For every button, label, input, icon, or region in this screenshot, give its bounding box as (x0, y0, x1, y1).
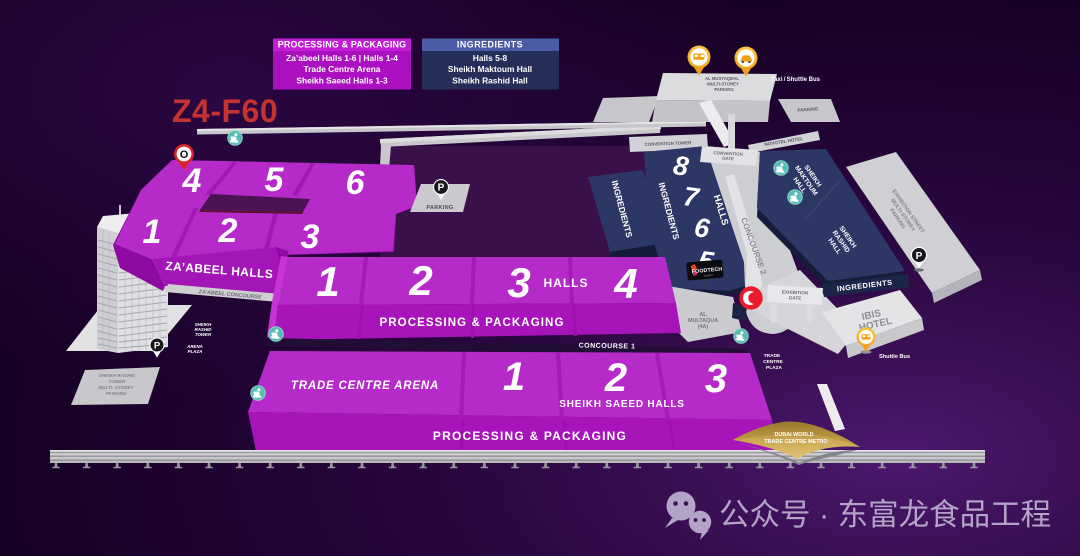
svg-text:DUBAI WORLD: DUBAI WORLD (775, 432, 814, 438)
svg-text:P: P (154, 340, 161, 351)
svg-text:PARKING: PARKING (714, 87, 734, 92)
svg-text:TRADE: TRADE (764, 353, 781, 359)
svg-text:INGREDIENTS: INGREDIENTS (457, 40, 523, 50)
svg-text:P: P (916, 251, 923, 262)
svg-text:TRADE CENTRE ARENA: TRADE CENTRE ARENA (291, 380, 439, 392)
svg-text:3: 3 (301, 218, 320, 256)
svg-text:公众号 · 东富龙食品工程: 公众号 · 东富龙食品工程 (719, 498, 1051, 532)
svg-text:(4A): (4A) (698, 324, 709, 330)
svg-text:2: 2 (408, 257, 432, 304)
svg-text:5: 5 (265, 161, 285, 199)
svg-text:Sheikh Rashid Hall: Sheikh Rashid Hall (452, 76, 527, 86)
svg-text:2: 2 (218, 212, 238, 250)
svg-text:3: 3 (705, 357, 727, 401)
svg-text:Trade Centre Arena: Trade Centre Arena (304, 64, 381, 74)
svg-text:PLAZA: PLAZA (766, 365, 783, 371)
svg-text:1: 1 (503, 355, 525, 399)
svg-text:PROCESSING & PACKAGING: PROCESSING & PACKAGING (379, 317, 564, 329)
svg-text:Sheikh Saeed Halls 1-3: Sheikh Saeed Halls 1-3 (296, 76, 388, 86)
svg-text:GATE: GATE (722, 156, 734, 162)
svg-text:Za’abeel Halls 1-6 | Halls 1-4: Za’abeel Halls 1-6 | Halls 1-4 (286, 53, 398, 63)
svg-text:PARKING: PARKING (106, 391, 127, 396)
svg-text:P: P (438, 183, 445, 194)
svg-text:1: 1 (143, 213, 162, 251)
svg-text:AL MUSTAQBAL: AL MUSTAQBAL (705, 76, 739, 81)
svg-text:MULTI- STOREY: MULTI- STOREY (98, 385, 134, 390)
svg-text:MULTI-STOREY: MULTI-STOREY (707, 82, 739, 87)
svg-text:PARKING: PARKING (426, 205, 453, 211)
svg-text:1: 1 (316, 258, 339, 305)
svg-text:6: 6 (346, 164, 366, 202)
svg-text:TOWER: TOWER (195, 332, 212, 337)
svg-text:3: 3 (507, 259, 530, 306)
svg-text:CENTRE: CENTRE (763, 359, 784, 365)
svg-text:PROCESSING & PACKAGING: PROCESSING & PACKAGING (433, 429, 627, 443)
svg-text:HALLS: HALLS (544, 276, 589, 290)
svg-text:Shuttle Bus: Shuttle Bus (879, 354, 910, 360)
svg-text:TOWER: TOWER (108, 379, 126, 384)
svg-text:GATE: GATE (789, 295, 802, 300)
svg-text:CONCOURSE 1: CONCOURSE 1 (579, 343, 636, 351)
svg-text:Taxi / Shuttle Bus: Taxi / Shuttle Bus (771, 77, 821, 83)
svg-text:2: 2 (604, 356, 627, 400)
svg-text:SHEIKH RASHID: SHEIKH RASHID (99, 373, 136, 378)
svg-text:4: 4 (613, 260, 637, 307)
svg-text:PROCESSING & PACKAGING: PROCESSING & PACKAGING (278, 40, 407, 50)
svg-text:Z4-F60: Z4-F60 (172, 93, 278, 129)
svg-text:O: O (180, 149, 189, 161)
svg-text:PLAZA: PLAZA (188, 349, 203, 354)
svg-text:TRADE CENTRE METRO: TRADE CENTRE METRO (764, 439, 827, 445)
svg-text:SHEIKH SAEED HALLS: SHEIKH SAEED HALLS (559, 399, 685, 410)
svg-text:Halls 5-8: Halls 5-8 (473, 53, 508, 63)
svg-text:Sheikh Maktoum Hall: Sheikh Maktoum Hall (448, 64, 532, 74)
